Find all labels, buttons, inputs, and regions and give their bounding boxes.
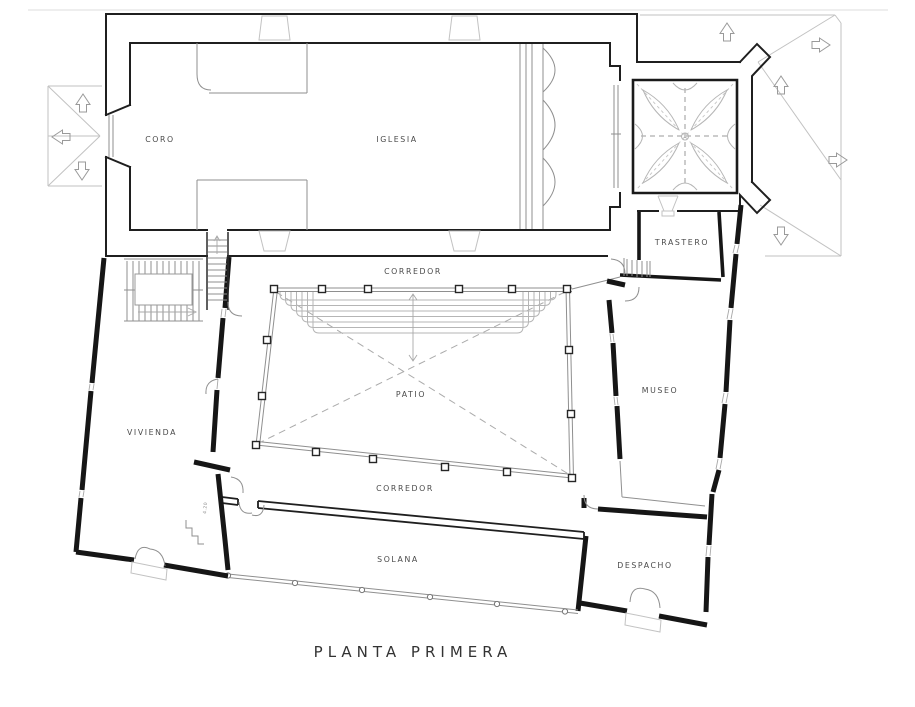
label-coro: CORO bbox=[145, 135, 175, 144]
slope-arrow-icon bbox=[774, 76, 788, 94]
vivienda-entrance-door-icon bbox=[131, 547, 167, 580]
plan-title: PLANTA PRIMERA bbox=[314, 643, 513, 661]
patio-cloister bbox=[253, 286, 576, 482]
label-museo: MUSEO bbox=[642, 386, 678, 395]
presbytery-steps bbox=[520, 44, 555, 229]
label-corredor-norte: CORREDOR bbox=[384, 267, 442, 276]
patio-steps-icon bbox=[280, 292, 556, 361]
roof-plan-west-porch bbox=[48, 86, 102, 186]
floor-plan-canvas: 4.20 bbox=[0, 0, 915, 707]
cross-vault-icon bbox=[635, 83, 735, 190]
trastero-room bbox=[572, 212, 723, 289]
label-patio: PATIO bbox=[396, 390, 426, 399]
label-despacho: DESPACHO bbox=[617, 561, 673, 570]
label-corredor-sur: CORREDOR bbox=[376, 484, 434, 493]
slope-arrow-icon bbox=[52, 130, 70, 144]
tower-chapel bbox=[633, 44, 770, 216]
floor-plan-sheet: 4.20 bbox=[0, 0, 915, 707]
label-solana: SOLANA bbox=[377, 555, 419, 564]
main-stair-icon bbox=[124, 259, 203, 321]
slope-arrow-icon bbox=[720, 23, 734, 41]
label-iglesia: IGLESIA bbox=[376, 135, 417, 144]
slope-arrow-icon bbox=[774, 227, 788, 245]
slope-arrow-icon bbox=[812, 38, 830, 52]
room-labels: CORO IGLESIA TRASTERO CORREDOR PATIO MUS… bbox=[127, 135, 709, 570]
label-trastero: TRASTERO bbox=[654, 238, 709, 247]
label-vivienda: VIVIENDA bbox=[127, 428, 177, 437]
despacho-entrance-door-icon bbox=[625, 588, 661, 632]
stair-dimension-annotation: 4.20 bbox=[202, 502, 209, 515]
slope-arrow-icon bbox=[75, 162, 89, 180]
patio-columns bbox=[253, 286, 576, 482]
slope-arrow-icon bbox=[829, 153, 847, 167]
slope-arrow-icon bbox=[76, 94, 90, 112]
coro-loft-outline bbox=[197, 43, 307, 230]
church-walls bbox=[106, 14, 740, 256]
